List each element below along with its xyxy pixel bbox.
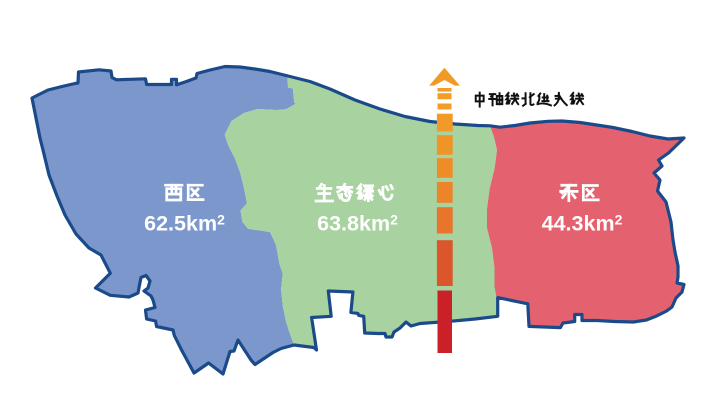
svg-text:63.8km2: 63.8km2 [317, 212, 398, 236]
svg-text:44.3km2: 44.3km2 [542, 212, 623, 236]
svg-text:62.5km2: 62.5km2 [144, 212, 225, 236]
